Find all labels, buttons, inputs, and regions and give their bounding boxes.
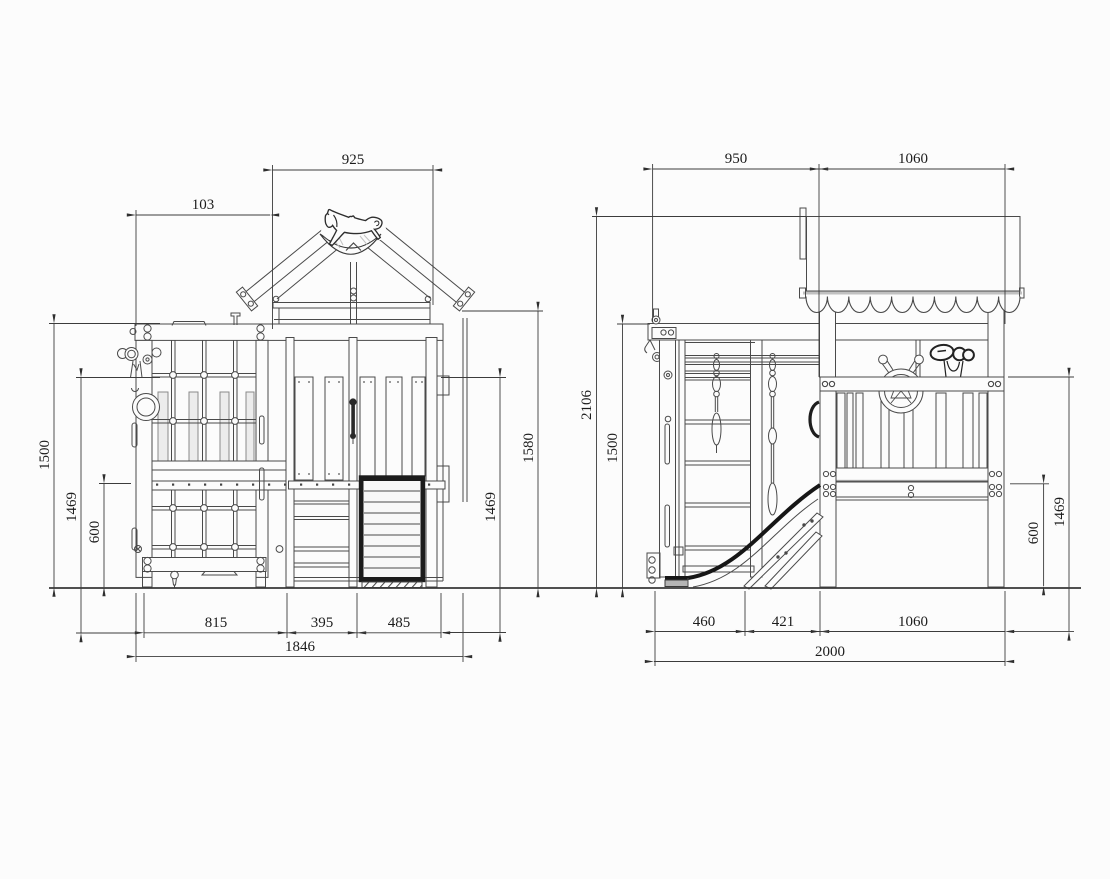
svg-text:1060: 1060 xyxy=(898,151,928,167)
svg-text:421: 421 xyxy=(772,614,795,630)
svg-text:1469: 1469 xyxy=(1052,497,1068,527)
svg-text:950: 950 xyxy=(725,151,748,167)
svg-text:600: 600 xyxy=(1026,522,1042,545)
svg-text:485: 485 xyxy=(388,615,411,631)
svg-text:2000: 2000 xyxy=(815,644,845,660)
svg-text:395: 395 xyxy=(311,615,334,631)
svg-text:2106: 2106 xyxy=(579,390,595,421)
svg-text:103: 103 xyxy=(192,197,215,213)
svg-text:460: 460 xyxy=(693,614,716,630)
svg-text:1060: 1060 xyxy=(898,614,928,630)
svg-text:925: 925 xyxy=(342,152,365,168)
svg-text:1580: 1580 xyxy=(521,433,537,463)
svg-text:1469: 1469 xyxy=(64,492,80,522)
svg-text:815: 815 xyxy=(205,615,228,631)
svg-text:1846: 1846 xyxy=(285,639,316,655)
svg-text:600: 600 xyxy=(87,521,103,544)
svg-text:1469: 1469 xyxy=(483,492,499,522)
svg-text:1500: 1500 xyxy=(605,433,621,463)
svg-text:1500: 1500 xyxy=(37,440,53,470)
